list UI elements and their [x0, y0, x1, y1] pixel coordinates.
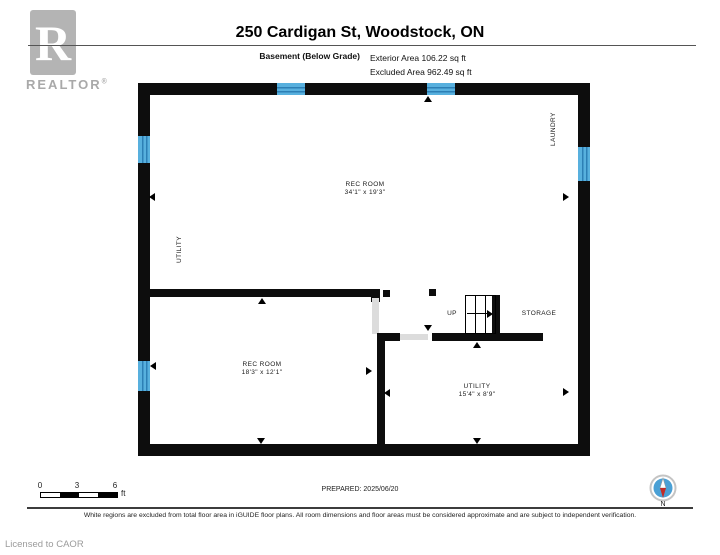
interior-wall-storage: [432, 333, 543, 341]
dim-arrow-icon: [473, 438, 481, 444]
label-utility-side: UTILITY: [176, 213, 183, 263]
wall-bottom: [138, 444, 590, 456]
area-summary: Exterior Area 106.22 sq ft Excluded Area…: [370, 51, 472, 79]
dim-arrow-icon: [257, 438, 265, 444]
stairs-direction-line: [467, 313, 488, 314]
floor-label: Basement (Below Grade): [180, 51, 360, 61]
dim-arrow-icon: [366, 367, 372, 375]
scale-segment: [60, 493, 79, 497]
interior-wall-stub-h: [377, 333, 400, 341]
license-text: Licensed to CAOR: [5, 539, 84, 550]
footer-divider: [27, 507, 693, 509]
dim-arrow-icon: [473, 342, 481, 348]
window-top-1: [277, 83, 305, 95]
page-title: 250 Cardigan St, Woodstock, ON: [0, 24, 720, 42]
floorplan-page: R REALTOR® 250 Cardigan St, Woodstock, O…: [0, 0, 720, 555]
window-right-1: [578, 147, 590, 181]
dim-arrow-icon: [563, 388, 569, 396]
scale-segment: [41, 493, 60, 497]
door-opening-horizontal: [400, 334, 428, 340]
interior-wall-recroom-top: [144, 289, 379, 297]
realtor-wordmark: REALTOR®: [26, 77, 109, 92]
realtor-logo-letter: R: [35, 18, 71, 68]
label-laundry: LAUNDRY: [550, 96, 557, 146]
compass-icon: [649, 474, 677, 502]
prepared-date: PREPARED: 2025/06/20: [0, 486, 720, 493]
room-label-rec-room-main: REC ROOM 34'1" x 19'3": [295, 181, 435, 197]
door-opening-vertical: [372, 298, 379, 334]
dim-arrow-icon: [149, 193, 155, 201]
label-up: UP: [441, 310, 463, 317]
dim-arrow-icon: [258, 298, 266, 304]
header-divider: [28, 45, 696, 46]
dim-arrow-icon: [150, 362, 156, 370]
disclaimer-text: White regions are excluded from total fl…: [0, 512, 720, 519]
window-top-2: [427, 83, 455, 95]
label-storage: STORAGE: [510, 310, 568, 317]
stairs-direction-arrow-icon: [487, 310, 493, 318]
window-left-2: [138, 361, 150, 391]
registered-mark: ®: [102, 79, 109, 86]
dim-arrow-icon: [424, 96, 432, 102]
room-label-utility: UTILITY 15'4" x 8'9": [407, 383, 547, 399]
room-label-rec-room-lower: REC ROOM 18'3" x 12'1": [192, 361, 332, 377]
exterior-area: Exterior Area 106.22 sq ft: [370, 51, 472, 65]
wall-post-2: [429, 289, 436, 296]
scale-segment: [98, 493, 117, 497]
scale-segment: [79, 493, 98, 497]
dim-arrow-icon: [424, 325, 432, 331]
wall-post-1: [383, 290, 390, 297]
excluded-area: Excluded Area 962.49 sq ft: [370, 65, 472, 79]
dim-arrow-icon: [563, 193, 569, 201]
realtor-logo: R: [30, 10, 76, 75]
dim-arrow-icon: [384, 389, 390, 397]
window-left-1: [138, 136, 150, 163]
wall-right: [578, 83, 590, 456]
wall-top: [138, 83, 590, 95]
